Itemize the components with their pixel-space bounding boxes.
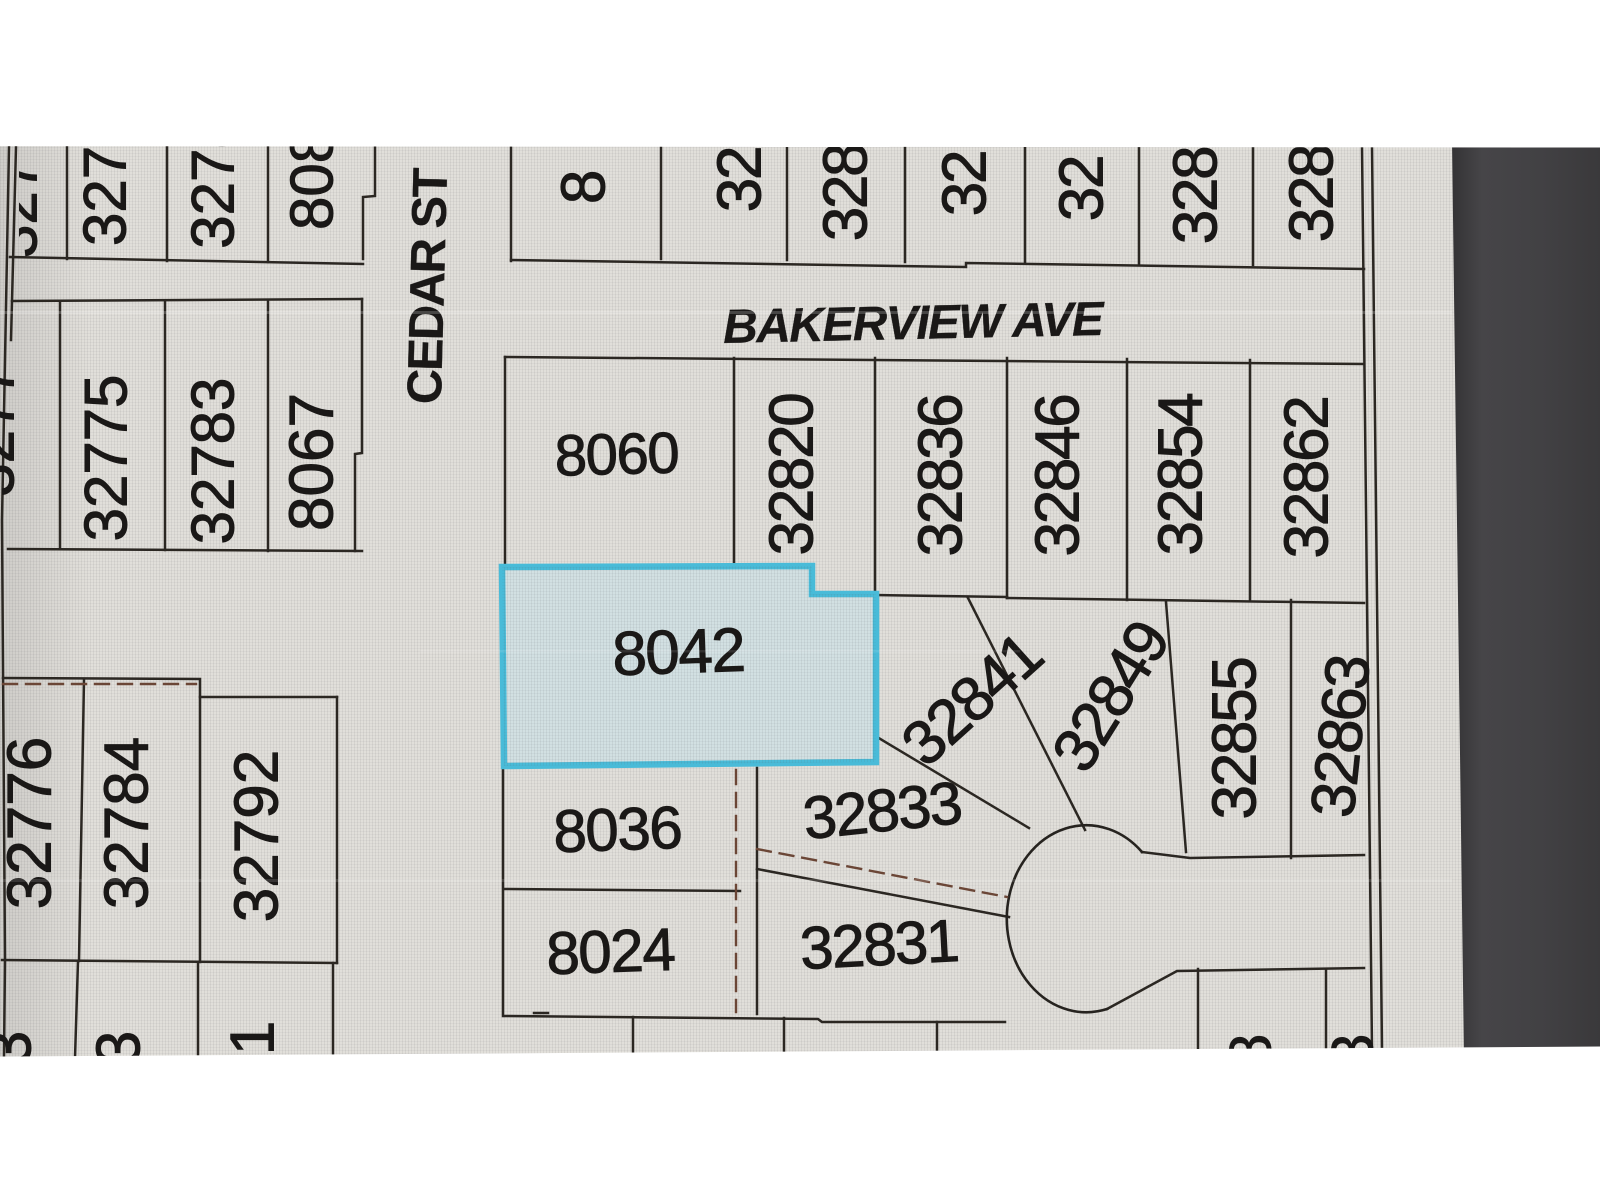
svg-text:32820: 32820 bbox=[758, 394, 827, 556]
svg-text:3277: 3277 bbox=[0, 363, 27, 496]
svg-text:3: 3 bbox=[1321, 1034, 1386, 1066]
svg-text:8: 8 bbox=[1219, 1034, 1284, 1066]
svg-text:8067: 8067 bbox=[278, 393, 347, 531]
svg-text:3278: 3278 bbox=[180, 115, 247, 248]
svg-text:328: 328 bbox=[812, 145, 881, 242]
svg-text:808: 808 bbox=[279, 130, 346, 230]
svg-text:328: 328 bbox=[1278, 146, 1347, 243]
svg-text:3: 3 bbox=[85, 1031, 154, 1065]
svg-text:CEDAR ST: CEDAR ST bbox=[398, 167, 458, 405]
svg-text:1: 1 bbox=[219, 1021, 288, 1055]
svg-text:327: 327 bbox=[72, 146, 139, 246]
svg-text:8042: 8042 bbox=[611, 616, 745, 690]
svg-text:32855: 32855 bbox=[1201, 659, 1270, 820]
svg-text:32792: 32792 bbox=[223, 750, 292, 922]
svg-text:8060: 8060 bbox=[554, 420, 679, 488]
svg-text:3: 3 bbox=[0, 1031, 45, 1065]
svg-text:BAKERVIEW AVE: BAKERVIEW AVE bbox=[723, 293, 1107, 354]
svg-text:32854: 32854 bbox=[1147, 394, 1216, 556]
svg-text:32846: 32846 bbox=[1024, 396, 1093, 557]
svg-text:32862: 32862 bbox=[1273, 398, 1342, 559]
svg-text:328: 328 bbox=[1162, 148, 1231, 245]
svg-text:8036: 8036 bbox=[552, 794, 682, 865]
svg-text:32783: 32783 bbox=[180, 378, 247, 545]
svg-text:32: 32 bbox=[1048, 157, 1117, 221]
svg-text:32775: 32775 bbox=[73, 375, 140, 542]
svg-text:32836: 32836 bbox=[907, 396, 976, 557]
svg-text:8024: 8024 bbox=[545, 916, 675, 987]
svg-text:8: 8 bbox=[550, 172, 619, 204]
svg-text:32776: 32776 bbox=[0, 737, 65, 909]
svg-text:32: 32 bbox=[931, 152, 1000, 216]
svg-text:32831: 32831 bbox=[798, 907, 959, 982]
svg-text:32: 32 bbox=[706, 148, 775, 212]
svg-text:32784: 32784 bbox=[93, 737, 162, 909]
